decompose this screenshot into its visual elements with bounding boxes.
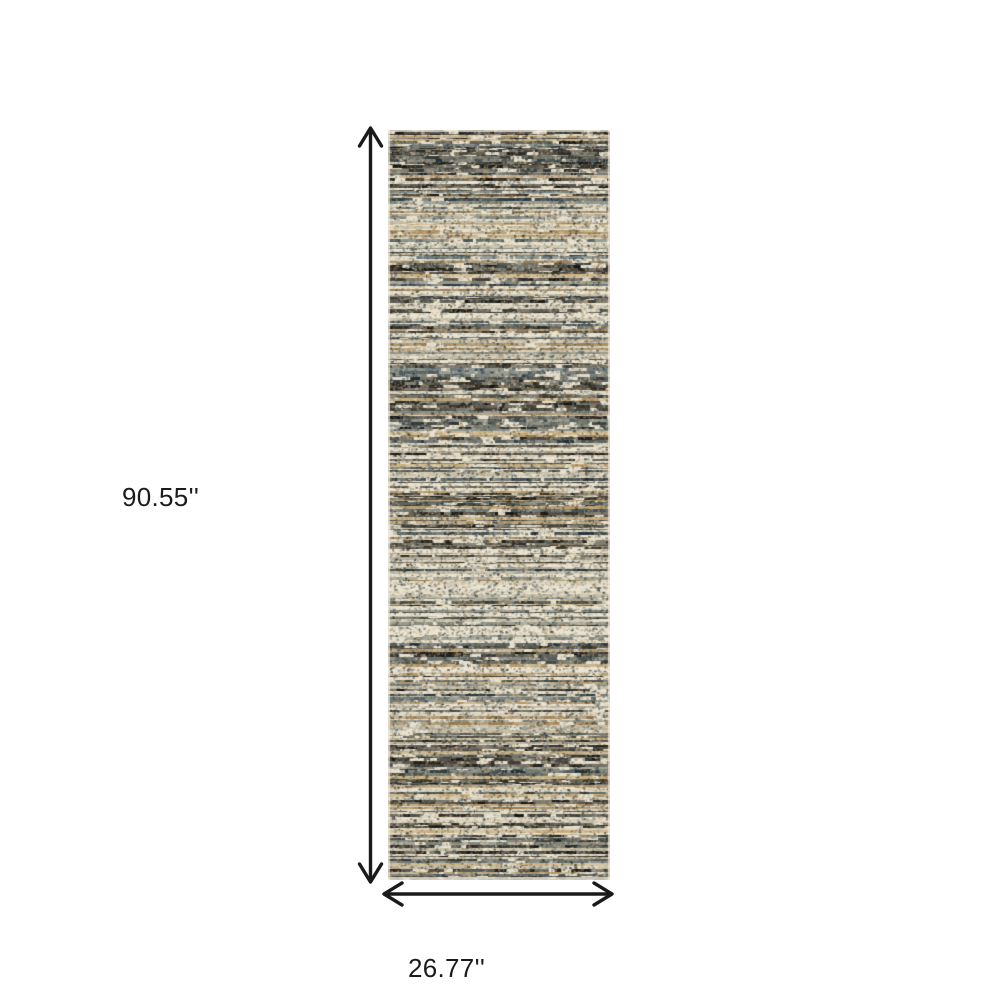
width-dimension-label: 26.77'': [408, 955, 485, 981]
height-dimension-label: 90.55'': [122, 484, 199, 510]
width-dimension-arrow: [384, 883, 612, 905]
rug-image: [388, 130, 610, 880]
height-dimension-arrow: [360, 128, 382, 882]
product-dimension-figure: 90.55'' 26.77'': [0, 0, 1000, 1000]
